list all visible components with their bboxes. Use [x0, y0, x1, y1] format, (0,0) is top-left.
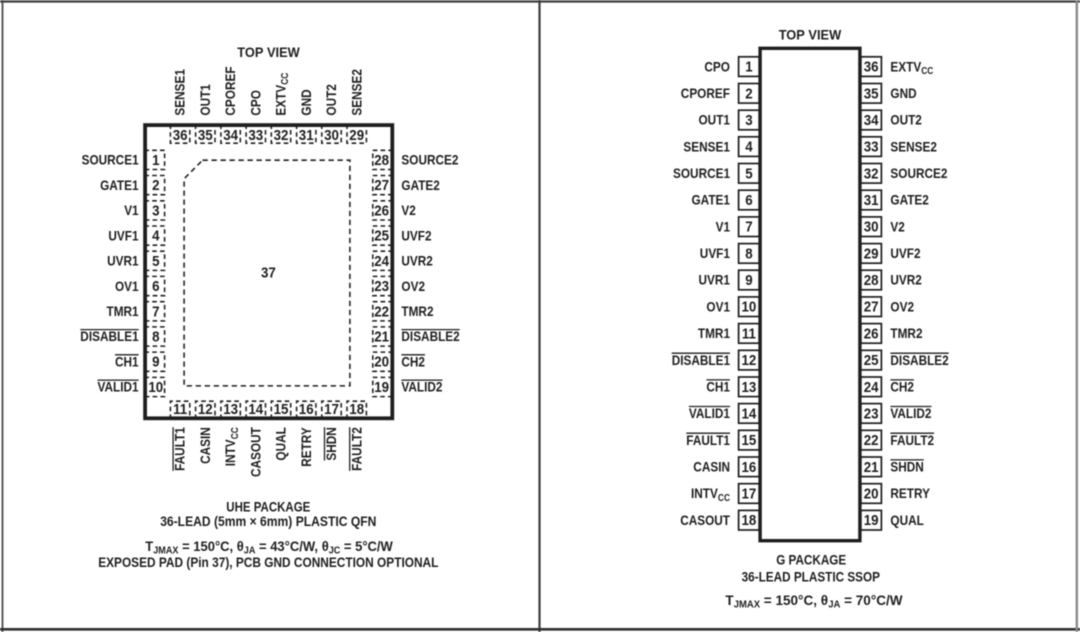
svg-text:CASIN: CASIN — [198, 427, 213, 464]
svg-text:TMR1: TMR1 — [107, 304, 139, 319]
svg-text:36: 36 — [173, 128, 188, 144]
svg-text:UVF2: UVF2 — [890, 246, 920, 261]
svg-text:12: 12 — [198, 402, 213, 418]
svg-text:21: 21 — [374, 330, 389, 346]
svg-text:10: 10 — [148, 380, 163, 396]
svg-text:SOURCE1: SOURCE1 — [82, 153, 139, 168]
svg-text:FAULT2: FAULT2 — [349, 427, 364, 471]
svg-text:GATE1: GATE1 — [692, 193, 731, 208]
svg-text:34: 34 — [223, 128, 239, 144]
svg-text:SENSE1: SENSE1 — [683, 139, 730, 154]
svg-text:20: 20 — [864, 487, 879, 503]
svg-text:DISABLE2: DISABLE2 — [401, 329, 460, 344]
svg-text:32: 32 — [274, 128, 289, 144]
svg-text:UVR1: UVR1 — [699, 273, 731, 288]
svg-text:27: 27 — [864, 300, 879, 316]
svg-text:CC: CC — [280, 73, 291, 85]
svg-text:SOURCE2: SOURCE2 — [401, 153, 458, 168]
svg-text:27: 27 — [374, 178, 389, 194]
svg-text:V1: V1 — [124, 203, 139, 218]
svg-text:= 5°C/W: = 5°C/W — [340, 538, 393, 554]
svg-text:37: 37 — [261, 265, 276, 281]
svg-text:V2: V2 — [401, 203, 416, 218]
svg-text:UVF1: UVF1 — [700, 246, 730, 261]
svg-text:34: 34 — [864, 113, 880, 129]
svg-text:35: 35 — [198, 128, 213, 144]
svg-text:16: 16 — [742, 460, 757, 476]
svg-text:CC: CC — [718, 493, 730, 504]
svg-text:UVR2: UVR2 — [890, 273, 922, 288]
svg-text:θ: θ — [322, 538, 329, 554]
svg-text:GATE1: GATE1 — [100, 178, 139, 193]
svg-text:1: 1 — [152, 153, 159, 169]
svg-text:26: 26 — [374, 203, 389, 219]
svg-text:CPOREF: CPOREF — [223, 66, 238, 115]
svg-text:9: 9 — [745, 273, 752, 289]
svg-text:30: 30 — [324, 128, 339, 144]
svg-text:1: 1 — [745, 60, 752, 76]
svg-text:CH1: CH1 — [115, 354, 139, 369]
svg-text:SHDN: SHDN — [890, 460, 923, 475]
svg-text:SOURCE2: SOURCE2 — [890, 166, 947, 181]
svg-text:= 70°C/W: = 70°C/W — [840, 592, 903, 608]
svg-text:3: 3 — [152, 203, 159, 219]
svg-text:RETRY: RETRY — [890, 486, 930, 501]
svg-text:31: 31 — [864, 193, 879, 209]
svg-text:UVR2: UVR2 — [401, 254, 433, 269]
svg-text:θ: θ — [821, 592, 828, 608]
svg-text:CASOUT: CASOUT — [680, 513, 730, 528]
svg-text:15: 15 — [274, 402, 289, 418]
svg-text:TMR2: TMR2 — [401, 304, 433, 319]
svg-text:SOURCE1: SOURCE1 — [673, 166, 730, 181]
svg-text:RETRY: RETRY — [299, 427, 314, 467]
svg-text:4: 4 — [745, 140, 753, 156]
svg-text:VALID2: VALID2 — [401, 380, 442, 395]
svg-text:G PACKAGE: G PACKAGE — [776, 553, 846, 568]
svg-text:θ: θ — [237, 538, 244, 554]
svg-text:TOP VIEW: TOP VIEW — [779, 27, 842, 43]
svg-text:GND: GND — [299, 89, 314, 115]
svg-text:9: 9 — [152, 355, 159, 371]
svg-text:35: 35 — [864, 86, 879, 102]
svg-text:13: 13 — [742, 380, 757, 396]
svg-text:13: 13 — [223, 402, 238, 418]
svg-text:OV1: OV1 — [706, 299, 730, 314]
svg-text:INTV: INTV — [223, 439, 238, 467]
svg-text:10: 10 — [742, 300, 757, 316]
svg-text:OV2: OV2 — [401, 279, 425, 294]
svg-text:= 150°C,: = 150°C, — [179, 538, 237, 554]
svg-text:V2: V2 — [890, 219, 905, 234]
svg-text:17: 17 — [324, 402, 339, 418]
svg-text:22: 22 — [864, 433, 879, 449]
svg-text:16: 16 — [299, 402, 314, 418]
svg-text:29: 29 — [864, 246, 879, 262]
svg-text:TMR1: TMR1 — [698, 326, 730, 341]
svg-text:UVF2: UVF2 — [401, 228, 431, 243]
svg-text:36-LEAD PLASTIC SSOP: 36-LEAD PLASTIC SSOP — [742, 570, 880, 585]
svg-text:VALID1: VALID1 — [98, 380, 139, 395]
svg-text:28: 28 — [864, 273, 879, 289]
svg-text:5: 5 — [745, 166, 752, 182]
svg-text:6: 6 — [152, 279, 159, 295]
svg-text:OUT1: OUT1 — [699, 113, 731, 128]
svg-text:2: 2 — [745, 86, 752, 102]
svg-text:OUT2: OUT2 — [324, 84, 339, 116]
svg-text:GATE2: GATE2 — [890, 193, 929, 208]
svg-text:QUAL: QUAL — [274, 427, 289, 460]
svg-text:INTV: INTV — [691, 486, 719, 501]
svg-text:CC: CC — [921, 66, 933, 77]
svg-text:7: 7 — [745, 220, 752, 236]
svg-text:TOP VIEW: TOP VIEW — [237, 44, 300, 60]
svg-text:32: 32 — [864, 166, 879, 182]
svg-text:33: 33 — [864, 140, 879, 156]
svg-text:CH2: CH2 — [890, 380, 914, 395]
svg-text:25: 25 — [374, 229, 389, 245]
svg-text:SHDN: SHDN — [324, 427, 339, 460]
svg-text:25: 25 — [864, 353, 879, 369]
svg-text:OV1: OV1 — [115, 279, 139, 294]
svg-text:QUAL: QUAL — [890, 513, 923, 528]
svg-text:4: 4 — [152, 229, 160, 245]
svg-text:CH1: CH1 — [706, 380, 730, 395]
svg-text:14: 14 — [742, 406, 758, 422]
svg-text:CH2: CH2 — [401, 354, 425, 369]
svg-text:CPO: CPO — [704, 59, 730, 74]
svg-text:UHE PACKAGE: UHE PACKAGE — [226, 500, 310, 515]
svg-text:30: 30 — [864, 220, 879, 236]
svg-text:11: 11 — [173, 402, 187, 418]
svg-text:11: 11 — [742, 326, 756, 342]
svg-text:FAULT2: FAULT2 — [890, 433, 934, 448]
svg-text:7: 7 — [152, 304, 159, 320]
svg-text:SENSE2: SENSE2 — [890, 139, 937, 154]
svg-text:19: 19 — [374, 380, 389, 396]
svg-text:12: 12 — [742, 353, 757, 369]
svg-text:CPOREF: CPOREF — [681, 86, 730, 101]
svg-text:= 43°C/W,: = 43°C/W, — [255, 538, 321, 554]
svg-text:V1: V1 — [716, 219, 731, 234]
svg-text:CC: CC — [230, 427, 241, 439]
svg-text:DISABLE2: DISABLE2 — [890, 353, 949, 368]
svg-text:28: 28 — [374, 153, 389, 169]
svg-text:VALID2: VALID2 — [890, 406, 931, 421]
svg-text:21: 21 — [864, 460, 879, 476]
svg-text:24: 24 — [374, 254, 390, 270]
svg-text:5: 5 — [152, 254, 159, 270]
svg-text:= 150°C,: = 150°C, — [760, 592, 821, 608]
svg-text:GND: GND — [890, 86, 916, 101]
svg-text:20: 20 — [374, 355, 389, 371]
svg-text:DISABLE1: DISABLE1 — [80, 329, 139, 344]
svg-text:8: 8 — [745, 246, 752, 262]
svg-text:SENSE2: SENSE2 — [349, 69, 364, 116]
svg-text:18: 18 — [349, 402, 364, 418]
svg-text:29: 29 — [349, 128, 364, 144]
svg-text:3: 3 — [745, 113, 752, 129]
svg-text:14: 14 — [248, 402, 264, 418]
svg-text:6: 6 — [745, 193, 752, 209]
svg-text:36-LEAD (5mm × 6mm) PLASTIC QF: 36-LEAD (5mm × 6mm) PLASTIC QFN — [160, 514, 376, 529]
svg-text:VALID1: VALID1 — [689, 406, 730, 421]
svg-text:24: 24 — [864, 380, 880, 396]
svg-text:33: 33 — [248, 128, 263, 144]
svg-text:22: 22 — [374, 304, 389, 320]
svg-text:DISABLE1: DISABLE1 — [672, 353, 731, 368]
svg-text:23: 23 — [374, 279, 389, 295]
svg-text:19: 19 — [864, 513, 879, 529]
svg-text:FAULT1: FAULT1 — [686, 433, 730, 448]
svg-text:OUT2: OUT2 — [890, 113, 922, 128]
svg-text:15: 15 — [742, 433, 757, 449]
svg-text:18: 18 — [742, 513, 757, 529]
svg-text:23: 23 — [864, 406, 879, 422]
svg-text:SENSE1: SENSE1 — [173, 69, 188, 116]
svg-text:CPO: CPO — [248, 90, 263, 116]
svg-text:EXTV: EXTV — [890, 59, 921, 74]
svg-text:CASIN: CASIN — [693, 460, 730, 475]
svg-text:EXTV: EXTV — [274, 84, 289, 115]
svg-text:UVF1: UVF1 — [108, 228, 138, 243]
svg-text:FAULT1: FAULT1 — [173, 427, 188, 471]
svg-text:GATE2: GATE2 — [401, 178, 440, 193]
svg-text:2: 2 — [152, 178, 159, 194]
svg-text:OUT1: OUT1 — [198, 84, 213, 116]
svg-text:JMAX: JMAX — [734, 600, 761, 611]
svg-text:36: 36 — [864, 60, 879, 76]
svg-text:UVR1: UVR1 — [107, 254, 139, 269]
svg-text:EXPOSED PAD (Pin 37), PCB GND: EXPOSED PAD (Pin 37), PCB GND CONNECTION… — [98, 555, 438, 570]
svg-text:CASOUT: CASOUT — [248, 427, 263, 477]
svg-text:17: 17 — [742, 487, 757, 503]
svg-text:8: 8 — [152, 330, 159, 346]
svg-text:31: 31 — [299, 128, 314, 144]
svg-text:26: 26 — [864, 326, 879, 342]
svg-text:OV2: OV2 — [890, 299, 914, 314]
svg-text:JA: JA — [828, 600, 840, 611]
svg-text:TMR2: TMR2 — [890, 326, 922, 341]
